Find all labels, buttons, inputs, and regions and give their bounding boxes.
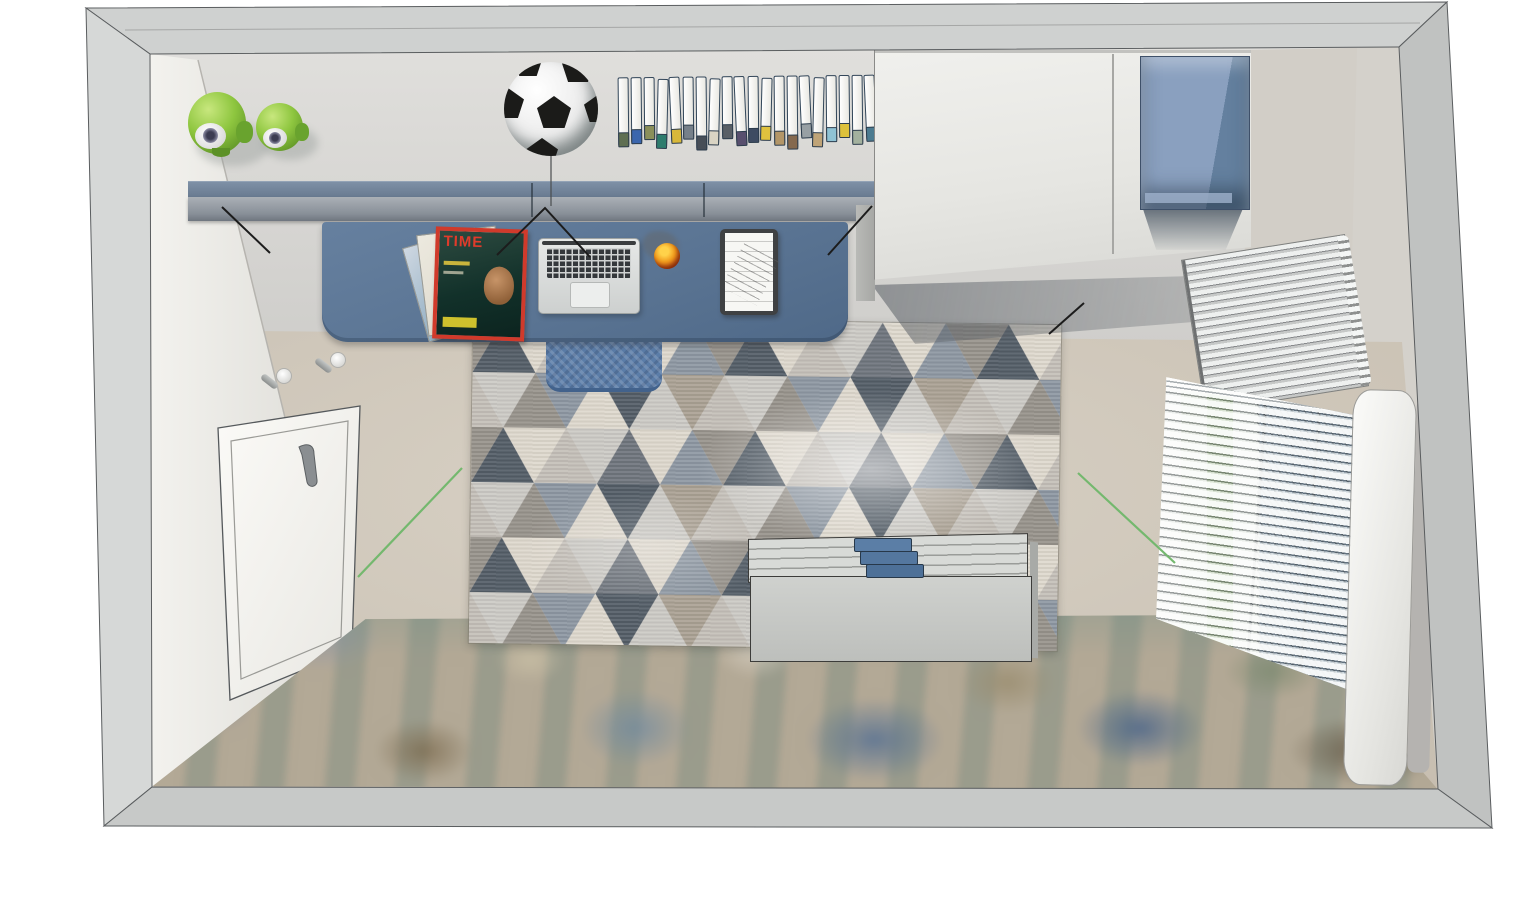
frame-bottom (104, 787, 1492, 828)
frame-top (86, 2, 1447, 54)
opening-indicator-lines (222, 206, 1084, 334)
frame-left (86, 8, 152, 826)
laser-guide-lines (358, 468, 1175, 577)
room-render: TIME (0, 0, 1536, 917)
frame-annotation-layer (0, 0, 1536, 917)
frame-right (1399, 2, 1492, 828)
